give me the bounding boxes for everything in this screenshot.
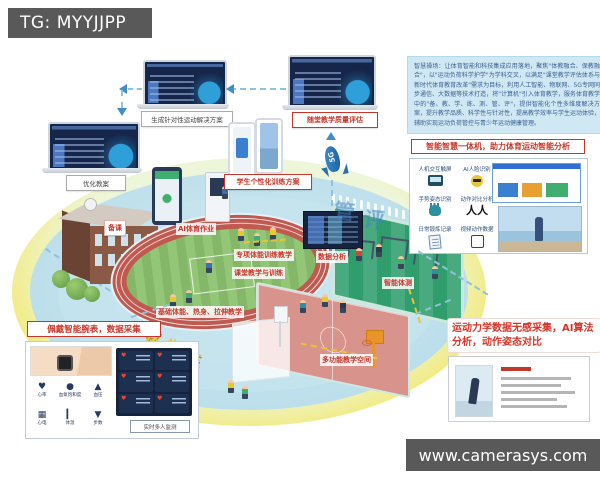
feature-touchscreen: 人机交互触屏 — [414, 165, 456, 186]
laptop-left-screen — [48, 122, 140, 171]
label-basic-fitness: 基础体能、热身、拉伸教学 — [156, 306, 244, 318]
smart-allinone-title: 智能智慧一体机，助力体育运动智能分析 — [411, 139, 585, 154]
student-phone-1 — [228, 122, 256, 178]
metric-label: 血压 — [94, 393, 103, 398]
connector — [128, 88, 142, 90]
person-figure — [238, 228, 244, 241]
person-figure — [432, 266, 438, 279]
blood-oxygen-icon: ● — [56, 382, 84, 392]
touchscreen-icon — [428, 175, 443, 186]
wristband-panel: ♥ 心率 ● 血氧饱和度 ▲ 血压 ▦ 心电 ▎ 体温 ▼ 步数 实时多人监测 — [25, 341, 199, 439]
photo-thumbnail — [498, 206, 582, 252]
person-figure — [228, 380, 234, 393]
arrow-left-icon — [226, 84, 234, 94]
kinematics-title: 运动力学数据无感采集，AI算法分析，动作姿态对比 — [447, 318, 600, 353]
big-char-evaluate: 评 — [362, 203, 386, 235]
feature-video-data: 视频动作数据 — [456, 225, 498, 248]
person-figure — [186, 290, 192, 303]
kinematics-card — [448, 356, 590, 422]
connector — [230, 88, 286, 90]
feature-touchscreen-label: 人机交互触屏 — [418, 167, 451, 173]
face-recognition-icon — [471, 175, 483, 187]
ecg-icon: ▦ — [28, 410, 56, 420]
person-figure — [356, 248, 362, 261]
steps-icon: ▼ — [84, 410, 112, 420]
watermark-bottom: www.camerasys.com — [406, 439, 600, 471]
projection-wall — [232, 317, 290, 383]
person-figure — [398, 256, 404, 269]
student-phone-2 — [255, 118, 283, 174]
satellite-dish-icon — [84, 198, 97, 211]
heart-rate-icon: ♥ — [28, 382, 56, 392]
metric-label: 心率 — [38, 393, 47, 398]
feature-video-label: 视频动作数据 — [460, 227, 493, 233]
person-figure — [340, 300, 346, 313]
dashboard-thumbnail — [492, 163, 581, 203]
connector — [331, 180, 333, 206]
metric-label: 心电 — [38, 421, 47, 426]
label-multi-space: 多功能教学空间 — [320, 354, 373, 366]
video-data-icon — [471, 235, 484, 248]
label-data-analysis: 数据分析 — [316, 251, 348, 263]
person-figure — [270, 227, 276, 240]
person-figure — [300, 300, 306, 313]
person-figure — [322, 294, 328, 307]
feature-face-label: AI人脸识别 — [463, 167, 490, 173]
solution-description: 智慧操场：让体育智能和科技集成应用落地，聚焦"体教融合、保教融合"，以"运动负荷… — [407, 56, 600, 134]
watermark-top: TG: MYYJJPP — [8, 8, 152, 38]
temperature-icon: ▎ — [56, 410, 84, 420]
basketball-ring — [362, 340, 372, 346]
connector — [121, 90, 123, 108]
realtime-monitor-screen — [116, 348, 192, 416]
metric-label: 步数 — [94, 421, 103, 426]
athlete-photo — [455, 365, 493, 417]
wristband-title: 佩戴智能腕表，数据采集 — [27, 321, 161, 337]
arrow-down-icon — [117, 108, 127, 116]
person-figure — [376, 244, 382, 257]
pullup-rig — [379, 236, 410, 260]
blood-pressure-icon: ▲ — [84, 382, 112, 392]
gesture-icon — [429, 205, 441, 216]
smartwatch-photo — [30, 346, 112, 376]
laptop-main-base — [137, 104, 229, 109]
rocket-5g-icon: 5G — [317, 144, 349, 181]
ai-homework-phone — [152, 167, 182, 225]
label-smart-fitness-test: 智能体测 — [382, 277, 414, 289]
motion-compare-icon: 人人 — [456, 205, 498, 217]
person-figure — [242, 386, 248, 399]
label-classroom-training: 课堂教学与训练 — [232, 267, 285, 279]
feature-daily-record: 日常锻炼记录 — [414, 225, 456, 249]
laptop-right-base — [282, 105, 378, 110]
label-laptop-main: 生成针对性运动解决方案 — [141, 111, 233, 127]
metric-label: 血氧饱和度 — [59, 393, 82, 398]
camera-pole — [279, 321, 281, 347]
camera-unit-icon — [274, 306, 288, 323]
metric-ecg: ▦ 心电 — [28, 410, 56, 426]
label-special-training: 专项体能训练教学 — [234, 249, 294, 261]
label-laptop-left: 优化教案 — [66, 175, 126, 191]
arrow-up-icon — [326, 132, 336, 140]
laptop-left-base — [42, 168, 142, 173]
laptop-main-screen — [143, 60, 227, 107]
feature-gesture: 手势姿态识别 — [414, 195, 456, 216]
big-char-manage: 管 — [332, 195, 356, 227]
laptop-right-screen — [288, 55, 376, 108]
feature-motion-label: 动作对比分析 — [460, 197, 493, 203]
metric-temperature: ▎ 体温 — [56, 410, 84, 426]
metric-steps: ▼ 步数 — [84, 410, 112, 426]
metric-heart-rate: ♥ 心率 — [28, 382, 56, 398]
label-laptop-right: 随堂教学质量评估 — [292, 112, 378, 128]
metric-spo2: ● 血氧饱和度 — [56, 382, 84, 398]
person-figure — [206, 260, 212, 273]
feature-record-label: 日常锻炼记录 — [418, 227, 451, 233]
metric-label: 体温 — [66, 421, 75, 426]
tree — [84, 286, 100, 302]
metric-blood-pressure: ▲ 血压 — [84, 382, 112, 398]
monitor-caption: 实时多人监测 — [130, 420, 190, 433]
exercise-record-icon — [428, 234, 441, 249]
label-phones: 学生个性化训练方案 — [224, 174, 312, 190]
label-ai-homework: AI体育作业 — [176, 223, 216, 235]
